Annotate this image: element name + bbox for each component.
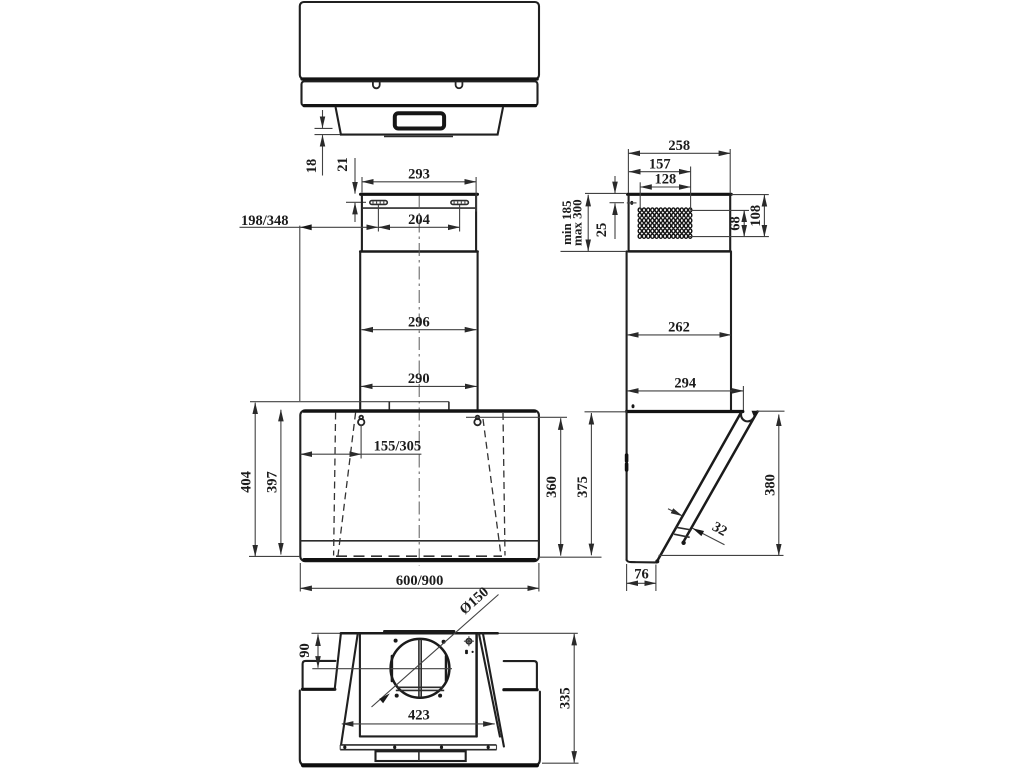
- svg-text:155/305: 155/305: [374, 438, 422, 454]
- svg-text:375: 375: [575, 476, 591, 498]
- svg-text:397: 397: [264, 471, 280, 493]
- svg-text:108: 108: [748, 205, 764, 227]
- svg-text:293: 293: [408, 166, 430, 182]
- svg-text:25: 25: [594, 223, 610, 238]
- svg-text:128: 128: [655, 172, 677, 188]
- svg-text:380: 380: [762, 474, 778, 496]
- svg-text:290: 290: [408, 371, 430, 387]
- svg-text:18: 18: [304, 159, 320, 174]
- svg-text:204: 204: [408, 212, 430, 228]
- svg-text:335: 335: [558, 687, 574, 709]
- svg-text:198/348: 198/348: [241, 213, 289, 229]
- svg-text:404: 404: [239, 471, 255, 493]
- svg-text:262: 262: [668, 320, 690, 336]
- svg-text:296: 296: [408, 314, 430, 330]
- svg-text:360: 360: [544, 476, 560, 498]
- svg-text:68: 68: [728, 216, 744, 231]
- svg-text:423: 423: [408, 708, 430, 724]
- svg-text:90: 90: [297, 643, 313, 658]
- svg-text:600/900: 600/900: [396, 573, 444, 589]
- svg-text:76: 76: [634, 567, 649, 583]
- svg-text:max 300: max 300: [570, 199, 585, 246]
- svg-text:258: 258: [668, 138, 690, 154]
- svg-text:294: 294: [674, 376, 696, 392]
- svg-text:21: 21: [335, 157, 351, 172]
- svg-text:157: 157: [649, 156, 671, 172]
